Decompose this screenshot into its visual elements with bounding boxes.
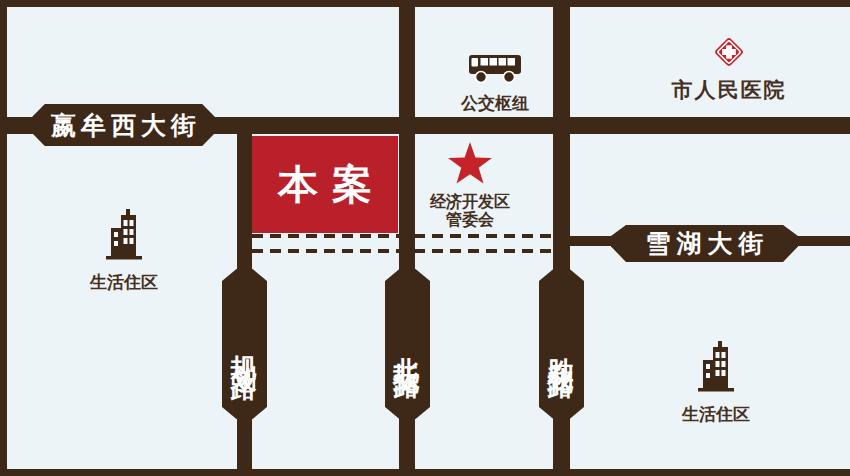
road-left-edge: [0, 0, 7, 476]
planned-road-dash-bottom: [252, 249, 553, 253]
poi-bus-hub-label: 公交枢纽: [461, 92, 529, 115]
building-icon: [696, 337, 736, 399]
star-icon: [446, 141, 494, 191]
poi-residential-southeast: 生活住区: [676, 337, 756, 426]
poi-hospital: 市人民医院: [646, 36, 812, 104]
poi-residential-west: 生活住区: [84, 205, 164, 294]
road-top-edge: [0, 0, 850, 7]
street-banner-guihua: 规划路: [222, 269, 267, 419]
site-marker: 本案: [252, 136, 398, 233]
poi-bus-hub: 公交枢纽: [450, 54, 540, 115]
street-banner-yingmou: 嬴牟西大街: [32, 104, 215, 146]
street-label-xuehu: 雪湖大街: [646, 227, 770, 260]
poi-edz-label-line2: 管委会: [446, 211, 494, 229]
poi-residential-southeast-label: 生活住区: [682, 403, 750, 426]
street-label-yingmou: 嬴牟西大街: [51, 109, 201, 142]
site-label: 本案: [278, 157, 386, 212]
poi-edz-label-line1: 经济开发区: [430, 193, 510, 211]
planned-road-dash-top: [252, 234, 553, 238]
poi-hospital-label: 市人民医院: [672, 76, 787, 104]
bus-icon: [467, 54, 523, 90]
poi-edz-committee: 经济开发区 管委会: [410, 141, 530, 229]
street-banner-beitan: 北坛北路: [385, 269, 430, 419]
road-bottom-edge: [0, 469, 850, 476]
poi-residential-west-label: 生活住区: [90, 271, 158, 294]
street-banner-shengli: 胜利北路: [539, 269, 584, 419]
hospital-cross-icon: [713, 36, 745, 72]
location-map: 嬴牟西大街 雪湖大街 规划路 北坛北路 胜利北路 本案 公交枢纽: [0, 0, 850, 476]
street-banner-xuehu: 雪湖大街: [611, 225, 798, 262]
building-icon: [104, 205, 144, 267]
